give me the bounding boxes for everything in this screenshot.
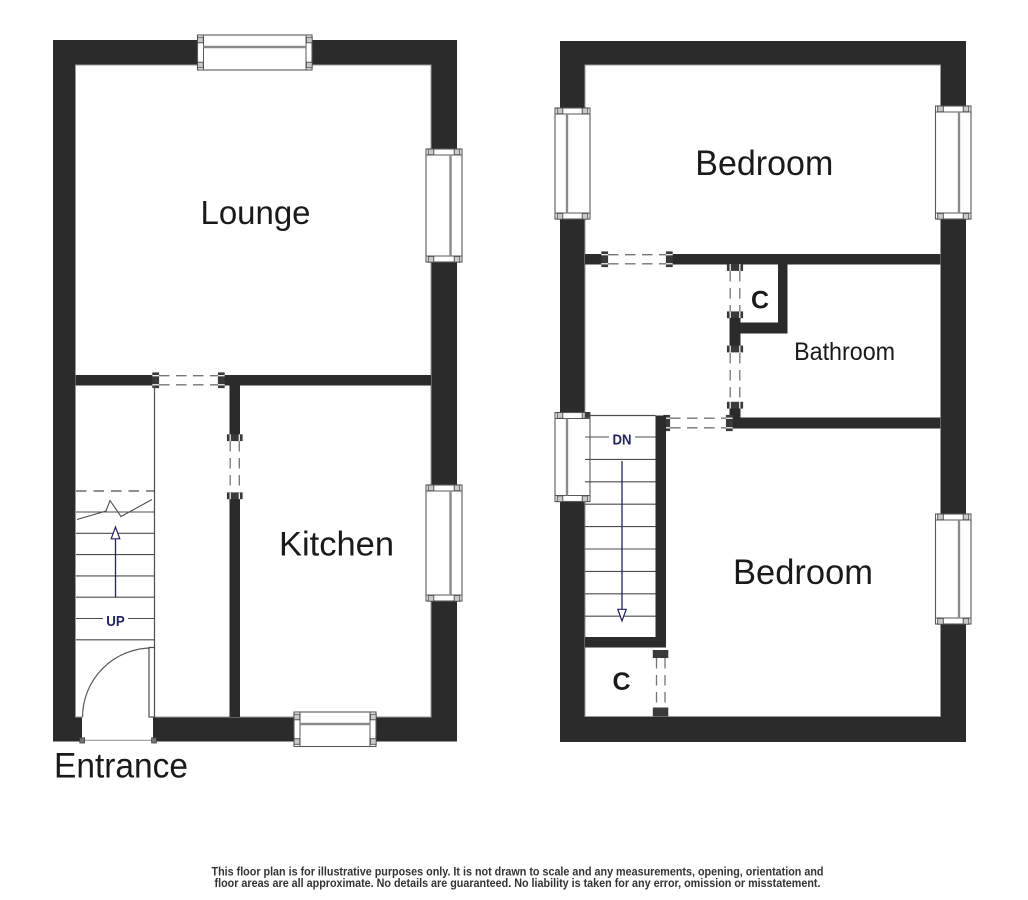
- svg-text:Kitchen: Kitchen: [279, 526, 394, 564]
- svg-text:Bedroom: Bedroom: [733, 552, 873, 592]
- svg-text:Bedroom: Bedroom: [695, 143, 833, 183]
- svg-text:This floor plan is for illustr: This floor plan is for illustrative purp…: [212, 866, 824, 878]
- svg-text:floor areas are all approximat: floor areas are all approximate. No deta…: [215, 878, 821, 890]
- svg-text:UP: UP: [106, 614, 125, 630]
- svg-text:C: C: [751, 287, 769, 315]
- svg-text:Bathroom: Bathroom: [794, 338, 895, 366]
- svg-text:DN: DN: [613, 433, 632, 449]
- svg-text:Entrance: Entrance: [54, 746, 188, 786]
- svg-text:C: C: [612, 668, 630, 696]
- svg-text:Lounge: Lounge: [201, 194, 311, 231]
